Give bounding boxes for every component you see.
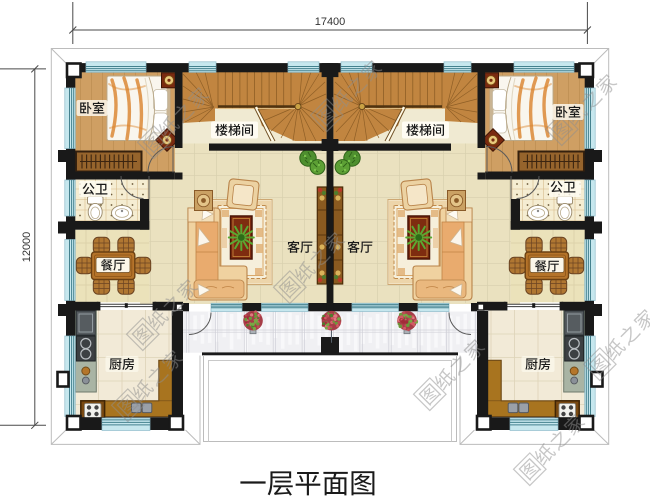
- svg-text:17400: 17400: [315, 16, 346, 28]
- svg-text:12000: 12000: [21, 232, 33, 263]
